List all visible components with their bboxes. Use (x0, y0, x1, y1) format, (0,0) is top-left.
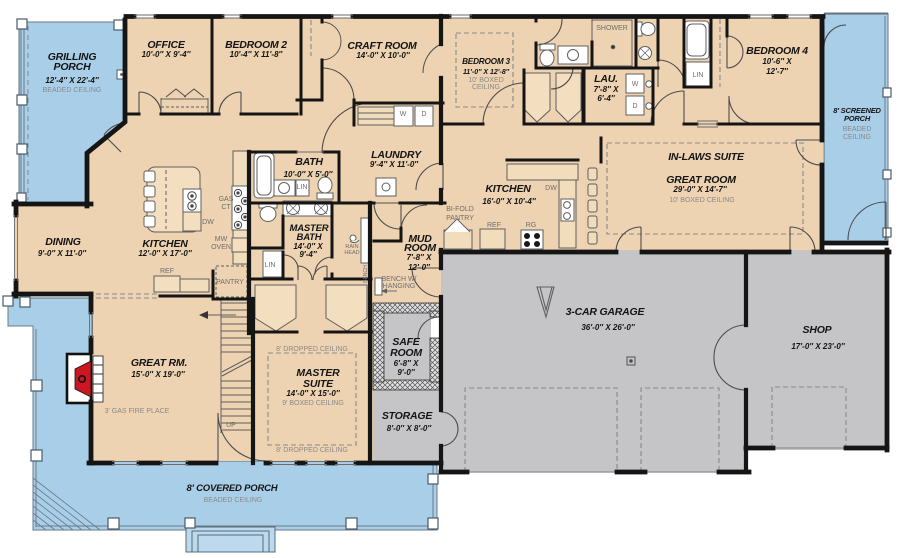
svg-text:SHOWER: SHOWER (596, 25, 628, 32)
svg-text:12′-7″: 12′-7″ (766, 67, 789, 76)
svg-text:RG: RG (526, 222, 537, 229)
svg-text:BI-FOLD: BI-FOLD (446, 206, 474, 213)
svg-text:6′-8″ X: 6′-8″ X (394, 359, 420, 368)
svg-text:BEADED: BEADED (843, 126, 872, 133)
svg-text:7′-8″ X: 7′-8″ X (407, 253, 433, 262)
svg-text:10′-0″ X 9′-4″: 10′-0″ X 9′-4″ (142, 50, 192, 59)
svg-text:29′-0″ X 14′-7″: 29′-0″ X 14′-7″ (672, 185, 727, 194)
svg-text:DW: DW (545, 185, 557, 192)
svg-text:SHOP: SHOP (803, 324, 833, 336)
svg-text:LAU.: LAU. (594, 73, 618, 85)
svg-text:PANTRY: PANTRY (446, 215, 474, 222)
svg-text:8′-0″ X 8′-0″: 8′-0″ X 8′-0″ (387, 424, 433, 433)
svg-text:8′ DROPPED CEILING: 8′ DROPPED CEILING (276, 346, 348, 353)
svg-text:6′-4″: 6′-4″ (597, 94, 615, 103)
svg-text:11′-0″ X 12′-8″: 11′-0″ X 12′-8″ (463, 69, 510, 76)
svg-text:BEADED CEILING: BEADED CEILING (43, 87, 102, 94)
svg-text:9′-4″ X 11′-0″: 9′-4″ X 11′-0″ (370, 160, 419, 169)
svg-text:GREAT RM.: GREAT RM. (131, 357, 188, 369)
svg-text:ROOM: ROOM (390, 347, 422, 359)
svg-text:MW: MW (215, 236, 228, 243)
svg-text:KITCHEN: KITCHEN (485, 183, 531, 195)
svg-text:HEAD: HEAD (344, 250, 359, 256)
svg-text:10′-0″ X 5′-0″: 10′-0″ X 5′-0″ (284, 170, 334, 179)
svg-text:CT: CT (221, 204, 231, 211)
svg-text:UP: UP (226, 422, 236, 429)
svg-text:9′-0″: 9′-0″ (397, 368, 415, 377)
svg-text:LIN: LIN (693, 72, 704, 79)
svg-text:17′-0″ X 23′-0″: 17′-0″ X 23′-0″ (791, 342, 845, 351)
svg-text:REF: REF (160, 268, 174, 275)
svg-text:10′-4″ X 11′-8″: 10′-4″ X 11′-8″ (230, 50, 284, 59)
svg-text:D: D (421, 111, 426, 118)
svg-text:9′-4″: 9′-4″ (299, 250, 317, 259)
svg-text:15′-0″ X 19′-0″: 15′-0″ X 19′-0″ (131, 370, 185, 379)
svg-text:D: D (632, 103, 637, 110)
svg-text:12′-0″: 12′-0″ (408, 263, 431, 272)
svg-text:LIN: LIN (265, 262, 276, 269)
svg-text:BEDROOM 3: BEDROOM 3 (462, 57, 510, 66)
svg-text:BATH: BATH (295, 156, 323, 168)
svg-text:OVEN: OVEN (211, 244, 231, 251)
svg-text:8′ DROPPED CEILING: 8′ DROPPED CEILING (276, 447, 348, 454)
svg-text:PORCH: PORCH (54, 61, 92, 73)
svg-text:10′ BOXED CEILING: 10′ BOXED CEILING (669, 197, 735, 204)
svg-text:8′ COVERED PORCH: 8′ COVERED PORCH (187, 483, 279, 494)
svg-text:IN-LAWS SUITE: IN-LAWS SUITE (668, 151, 745, 163)
svg-text:BEADED CEILING: BEADED CEILING (204, 497, 263, 504)
svg-text:HANGING: HANGING (383, 283, 416, 290)
svg-text:DINING: DINING (45, 236, 81, 248)
svg-text:10′-6″ X: 10′-6″ X (762, 57, 792, 66)
svg-text:3′ GAS FIRE PLACE: 3′ GAS FIRE PLACE (105, 408, 170, 415)
svg-text:W: W (632, 81, 639, 88)
svg-text:W: W (400, 111, 407, 118)
svg-text:DW: DW (202, 219, 214, 226)
svg-text:PORCH: PORCH (844, 114, 871, 123)
svg-text:CEILING: CEILING (843, 134, 871, 141)
svg-text:BENCH W/: BENCH W/ (382, 276, 417, 283)
svg-text:STORAGE: STORAGE (382, 410, 434, 422)
svg-text:14′-0″ X 10′-0″: 14′-0″ X 10′-0″ (356, 51, 410, 60)
svg-text:LIN: LIN (297, 184, 308, 191)
svg-text:9′ BOXED CEILING: 9′ BOXED CEILING (282, 400, 344, 407)
svg-text:PANTRY: PANTRY (216, 279, 244, 286)
svg-text:9′-0″ X 11′-0″: 9′-0″ X 11′-0″ (38, 249, 87, 258)
svg-text:10′ BOXED: 10′ BOXED (468, 77, 504, 84)
svg-text:BENCH: BENCH (363, 265, 369, 283)
svg-text:GAS: GAS (219, 196, 234, 203)
svg-text:14′-0″ X 15′-0″: 14′-0″ X 15′-0″ (286, 389, 340, 398)
svg-text:REF: REF (487, 222, 501, 229)
svg-text:12′-0″ X 17′-0″: 12′-0″ X 17′-0″ (138, 249, 192, 258)
svg-text:12′-4″ X 22′-4″: 12′-4″ X 22′-4″ (45, 76, 99, 85)
svg-text:3-CAR GARAGE: 3-CAR GARAGE (566, 306, 646, 318)
svg-text:16′-0″ X 10′-4″: 16′-0″ X 10′-4″ (482, 197, 536, 206)
svg-text:7′-8″ X: 7′-8″ X (594, 85, 620, 94)
svg-text:36′-0″ X 26′-0″: 36′-0″ X 26′-0″ (581, 323, 635, 332)
svg-text:BEDROOM 4: BEDROOM 4 (746, 45, 808, 57)
svg-text:CEILING: CEILING (472, 84, 500, 91)
